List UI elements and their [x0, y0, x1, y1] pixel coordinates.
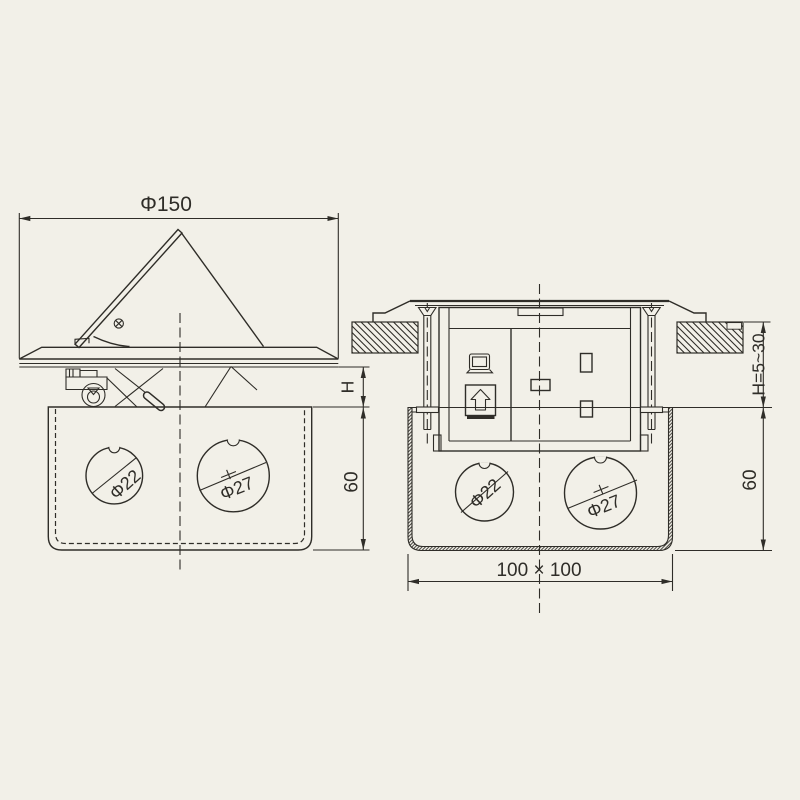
lid-plate — [75, 230, 182, 348]
box-top-lip — [408, 408, 673, 413]
drawing-canvas: Φ22 Φ27 Φ150 H — [0, 0, 800, 800]
phillips-screw-icon — [114, 319, 123, 328]
scissor-links — [107, 367, 257, 408]
floor-box-section: Φ22 Φ27 — [408, 408, 673, 551]
plate-trapezoid — [19, 347, 338, 359]
socket-slot-top — [581, 354, 593, 373]
computer-icon — [467, 354, 493, 373]
box-wall-section — [408, 408, 673, 551]
mounting-screw-right — [641, 303, 663, 447]
floor-socket-technical-drawing: Φ22 Φ27 Φ150 H — [0, 0, 800, 800]
cover-plate — [19, 347, 338, 367]
lid-open — [75, 230, 264, 348]
mounting-screw-left — [417, 303, 439, 447]
dim-lid-diameter-label: Φ150 — [140, 193, 192, 216]
cable-knockout-small: Φ22 — [456, 458, 514, 522]
dim-popup-height-label: H — [338, 381, 358, 394]
side-view: Φ22 Φ27 Φ150 H — [19, 193, 369, 572]
leveling-shim — [727, 323, 742, 330]
cable-knockout-small: Φ22 — [86, 442, 144, 504]
cable-knockout-large: Φ27 — [197, 434, 269, 512]
section-view: Φ22 Φ27 — [352, 284, 772, 617]
cable-knockout-large: Φ27 — [565, 451, 638, 529]
socket-slot-middle — [531, 380, 550, 391]
lift-mechanism — [66, 367, 257, 408]
screw-washer — [641, 407, 663, 413]
unit-foot-right — [641, 435, 649, 451]
lid-swing-arc — [94, 337, 130, 347]
dim-box-depth-label: 60 — [740, 469, 761, 490]
dim-lid-diameter: Φ150 — [19, 193, 338, 359]
dim-popup-height: H — [313, 367, 370, 407]
knockout-large-label: Φ27 — [584, 491, 623, 522]
dim-box-depth-label: 60 — [342, 471, 363, 492]
floor-slab-hatch-left — [352, 322, 418, 353]
dim-box-footprint: 100 × 100 — [408, 554, 673, 591]
dim-box-footprint-label: 100 × 100 — [496, 560, 581, 581]
dim-box-depth: 60 — [675, 408, 772, 551]
knockout-small-label: Φ22 — [106, 466, 145, 504]
unit-foot-left — [434, 435, 442, 451]
eject-arrow-icon — [466, 385, 496, 418]
lid-support-edge — [182, 233, 264, 347]
lid-latch — [518, 308, 563, 316]
dim-box-depth: 60 — [313, 408, 370, 551]
dim-mounting-depth-label: H=5~30 — [749, 333, 769, 396]
knockout-large-label: Φ27 — [217, 473, 256, 504]
socket-slot-bottom — [581, 401, 593, 417]
screw-washer — [417, 407, 439, 413]
socket-unit — [434, 308, 649, 452]
